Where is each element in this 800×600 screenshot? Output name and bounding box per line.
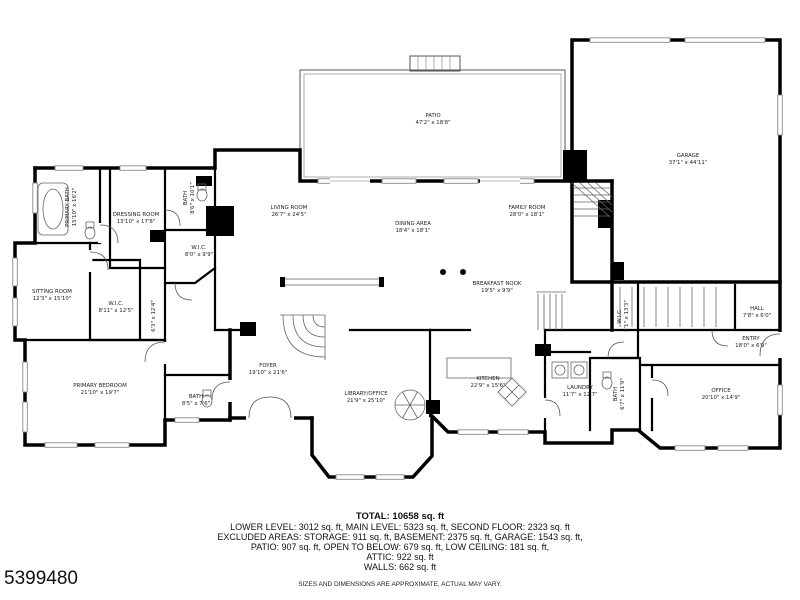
- room-label: W.I.C.8'0" x 9'9": [185, 245, 213, 258]
- summary-excluded-2: PATIO: 907 sq. ft, OPEN TO BELOW: 679 sq…: [0, 542, 800, 552]
- room-label: OFFICE20'10" x 14'9": [702, 388, 741, 401]
- room-label: W.I.C.5'1" x 13'3": [617, 300, 630, 332]
- room-label: PRIMARY BEDROOM21'10" x 19'7": [73, 383, 127, 396]
- room-label: LIBRARY/OFFICE21'9" x 25'10": [344, 391, 388, 404]
- room-label: HALL7'8" x 6'0": [743, 306, 771, 319]
- interior-walls: [25, 150, 780, 443]
- summary-walls: WALLS: 662 sq. ft: [0, 562, 800, 572]
- room-label: LIVING ROOM26'7" x 24'5": [271, 205, 308, 218]
- toilet-icon: [602, 372, 612, 389]
- summary-excluded-1: EXCLUDED AREAS: STORAGE: 911 sq. ft, BAS…: [0, 532, 800, 542]
- room-label: LAUNDRY11'7" x 12'7": [562, 385, 597, 398]
- toilet-icon: [197, 184, 207, 201]
- toilet-icon: [85, 222, 95, 239]
- summary-disclaimer: SIZES AND DIMENSIONS ARE APPROXIMATE, AC…: [0, 581, 800, 588]
- room-label: PATIO47'2" x 18'8": [415, 113, 450, 126]
- room-label: FAMILY ROOM28'0" x 18'1": [509, 205, 546, 218]
- summary-levels: LOWER LEVEL: 3012 sq. ft, MAIN LEVEL: 53…: [0, 522, 800, 532]
- room-label: DINING AREA18'4" x 18'1": [395, 221, 431, 234]
- listing-id: 5399480: [4, 568, 78, 590]
- summary-total: TOTAL: 10658 sq. ft: [0, 512, 800, 522]
- room-label: 6'3" x 12'4": [151, 300, 157, 332]
- room-label: SITTING ROOM12'3" x 15'10": [32, 289, 72, 302]
- room-label: PRIMARY BATH15'10" x 16'2": [65, 187, 78, 227]
- room-label: GARAGE37'1" x 44'11": [669, 153, 708, 166]
- room-label: W.I.C.8'11" x 12'5": [98, 301, 133, 314]
- floor-plan-drawing: PATIO47'2" x 18'8"GARAGE37'1" x 44'11"LI…: [0, 0, 800, 512]
- area-summary: TOTAL: 10658 sq. ft LOWER LEVEL: 3012 sq…: [0, 512, 800, 588]
- room-label: DRESSING ROOM13'10" x 17'8": [113, 212, 160, 225]
- room-label: BATH8'6" x 10'1": [183, 182, 196, 214]
- room-label: BREAKFAST NOOK19'5" x 9'9": [473, 281, 522, 294]
- room-label: ENTRY18'0" x 6'9": [735, 336, 767, 349]
- summary-attic: ATTIC: 922 sq. ft: [0, 552, 800, 562]
- room-label: BATH6'7" x 11'9": [613, 378, 626, 410]
- room-label: FOYER19'10" x 21'6": [249, 363, 288, 376]
- floor-plan: PATIO47'2" x 18'8"GARAGE37'1" x 44'11"LI…: [0, 0, 800, 512]
